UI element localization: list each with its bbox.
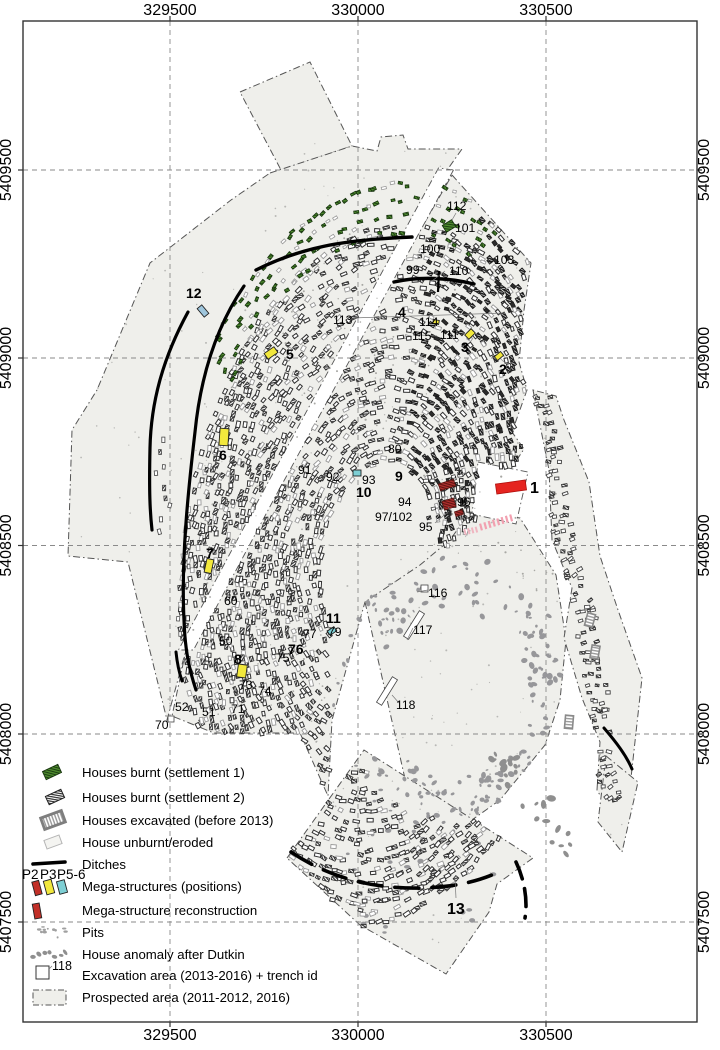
svg-text:94: 94	[398, 495, 412, 509]
svg-text:113: 113	[333, 313, 353, 327]
svg-text:12: 12	[186, 285, 202, 301]
svg-text:118: 118	[52, 959, 72, 973]
svg-text:Houses burnt (settlement 1): Houses burnt (settlement 1)	[82, 765, 245, 780]
svg-text:111: 111	[440, 328, 459, 342]
svg-text:5408000: 5408000	[0, 703, 15, 765]
svg-text:5: 5	[286, 346, 294, 362]
svg-text:Mega-structures (positions): Mega-structures (positions)	[82, 879, 242, 894]
svg-text:92: 92	[326, 470, 340, 484]
svg-text:71: 71	[231, 702, 245, 716]
svg-text:103: 103	[494, 253, 515, 267]
svg-text:Mega-structure reconstruction: Mega-structure reconstruction	[82, 903, 257, 918]
svg-text:5407500: 5407500	[0, 891, 15, 953]
svg-text:114: 114	[419, 315, 439, 329]
svg-text:329500: 329500	[143, 1027, 196, 1044]
svg-text:330500: 330500	[519, 1027, 572, 1044]
svg-text:50: 50	[219, 634, 233, 648]
svg-text:7: 7	[206, 545, 214, 561]
svg-text:Houses excavated (before 2013): Houses excavated (before 2013)	[82, 813, 273, 828]
svg-text:330000: 330000	[331, 1027, 384, 1044]
svg-text:5409000: 5409000	[0, 327, 15, 389]
svg-text:2: 2	[499, 361, 507, 377]
svg-text:5407500: 5407500	[696, 891, 713, 953]
svg-text:9: 9	[395, 468, 403, 484]
svg-text:5409500: 5409500	[0, 139, 15, 201]
svg-text:5408000: 5408000	[696, 703, 713, 765]
svg-text:97/102: 97/102	[375, 510, 412, 524]
svg-text:117: 117	[413, 623, 433, 637]
svg-text:75: 75	[276, 651, 290, 665]
svg-text:79: 79	[328, 625, 342, 639]
svg-text:4: 4	[398, 304, 406, 320]
svg-text:96: 96	[457, 495, 471, 509]
svg-text:93: 93	[362, 473, 376, 487]
svg-text:6: 6	[219, 447, 227, 463]
svg-text:91: 91	[298, 463, 312, 477]
svg-text:13: 13	[447, 901, 465, 918]
svg-text:76: 76	[288, 641, 304, 657]
svg-text:116: 116	[428, 586, 448, 600]
svg-text:52: 52	[175, 700, 189, 714]
svg-text:8: 8	[234, 651, 242, 667]
svg-text:Pits: Pits	[82, 925, 104, 940]
svg-text:77: 77	[303, 627, 317, 641]
svg-text:Ditches: Ditches	[82, 857, 126, 872]
svg-text:60: 60	[224, 594, 238, 608]
svg-text:Excavation area (2013-2016) +: Excavation area (2013-2016) + trench id	[82, 968, 318, 983]
svg-text:73: 73	[239, 678, 253, 692]
svg-text:101: 101	[455, 221, 476, 235]
svg-text:3: 3	[461, 339, 469, 355]
svg-text:100: 100	[420, 242, 441, 256]
svg-text:House anomaly after Dutkin: House anomaly after Dutkin	[82, 947, 245, 962]
svg-text:P5-6: P5-6	[57, 867, 86, 882]
svg-text:P2: P2	[22, 867, 39, 882]
svg-text:11: 11	[326, 610, 341, 626]
svg-text:330500: 330500	[519, 2, 572, 19]
svg-text:110: 110	[449, 264, 469, 278]
svg-text:Prospected area (2011-2012, 20: Prospected area (2011-2012, 2016)	[82, 990, 290, 1005]
svg-text:99: 99	[406, 263, 420, 277]
svg-text:5408500: 5408500	[0, 514, 15, 576]
svg-text:74: 74	[258, 684, 272, 698]
svg-text:115: 115	[412, 329, 432, 343]
svg-text:118: 118	[396, 698, 416, 712]
svg-text:112: 112	[447, 199, 467, 213]
svg-text:5409500: 5409500	[696, 139, 713, 201]
svg-text:80: 80	[388, 442, 402, 456]
svg-text:1: 1	[530, 480, 539, 497]
svg-text:Houses burnt (settlement 2): Houses burnt (settlement 2)	[82, 790, 245, 805]
svg-text:95: 95	[419, 520, 433, 534]
svg-text:330000: 330000	[331, 2, 384, 19]
svg-text:House unburnt/eroded: House unburnt/eroded	[82, 835, 213, 850]
svg-text:5408500: 5408500	[696, 514, 713, 576]
svg-text:70: 70	[155, 718, 169, 732]
svg-text:329500: 329500	[143, 2, 196, 19]
svg-text:51: 51	[202, 705, 216, 719]
svg-text:5409000: 5409000	[696, 327, 713, 389]
